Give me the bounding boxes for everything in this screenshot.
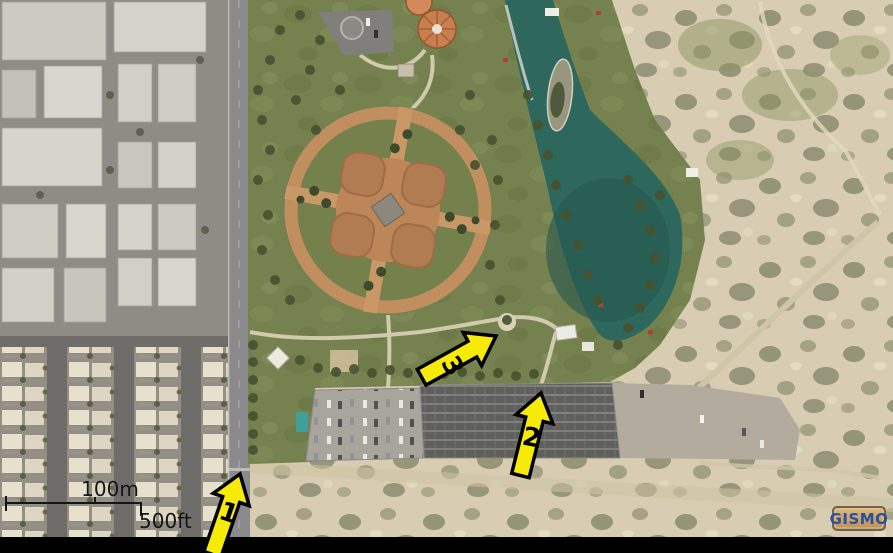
aerial-map: 100m 500ft 1 2 3 GISMO	[0, 0, 893, 553]
watermark-label: GISMO	[830, 510, 889, 528]
industrial-area	[0, 0, 232, 336]
park-pavilion	[555, 325, 577, 341]
map-viewport: 100m 500ft 1 2 3 GISMO	[0, 0, 893, 553]
residential-area	[0, 336, 232, 537]
boathouse	[545, 8, 559, 16]
scale-imperial-label: 500ft	[139, 509, 192, 533]
watermark-badge: GISMO	[830, 507, 889, 530]
main-road	[228, 0, 250, 537]
scale-metric-label: 100m	[81, 477, 139, 501]
letterbox-bar	[0, 537, 893, 553]
park-shelter	[582, 342, 594, 351]
lakeside-building	[686, 168, 698, 177]
playground	[296, 412, 308, 432]
